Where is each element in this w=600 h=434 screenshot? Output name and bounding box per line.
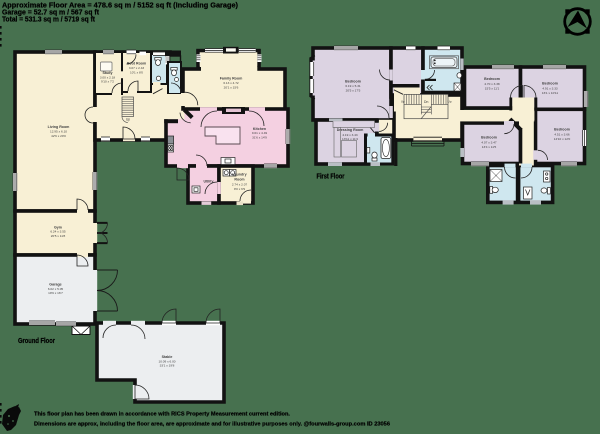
svg-text:20'5 x 11'8: 20'5 x 11'8 [51, 234, 66, 238]
svg-text:9'10 x 7'2: 9'10 x 7'2 [101, 79, 114, 83]
svg-text:4.51 x 3.66: 4.51 x 3.66 [554, 132, 570, 136]
svg-text:Bedroom: Bedroom [542, 82, 558, 86]
svg-text:Bedroom: Bedroom [554, 128, 570, 132]
svg-text:Total = 531.3 sq m / 5719 sq f: Total = 531.3 sq m / 5719 sq ft [2, 17, 96, 24]
svg-text:Dimensions are approx, includi: Dimensions are approx, including the flo… [34, 422, 390, 428]
svg-text:Up: Up [448, 100, 452, 104]
svg-text:20'1 x 15'6: 20'1 x 15'6 [224, 85, 239, 89]
svg-text:16'1 x 10'11: 16'1 x 10'11 [542, 91, 559, 95]
svg-text:Kitchen: Kitchen [253, 127, 266, 131]
svg-text:10'1 x 8'0: 10'1 x 8'0 [130, 70, 143, 74]
svg-text:4.91 x 3.33: 4.91 x 3.33 [542, 86, 558, 90]
svg-text:Dressing Room: Dressing Room [337, 128, 364, 132]
svg-text:4.70 x 3.38: 4.70 x 3.38 [484, 82, 500, 86]
svg-text:13'11 x 11'4: 13'11 x 11'4 [342, 137, 358, 141]
svg-text:Dn: Dn [424, 100, 428, 104]
svg-text:42'6 x 20'0: 42'6 x 20'0 [51, 134, 66, 138]
svg-text:13'4 x 11'5: 13'4 x 11'5 [482, 145, 497, 149]
svg-text:9'0 x 6'9: 9'0 x 6'9 [234, 187, 246, 191]
svg-text:Approximate Floor Area = 478.6: Approximate Floor Area = 478.6 sq m / 51… [2, 3, 238, 10]
svg-text:Garage = 52.7 sq m / 567 sq ft: Garage = 52.7 sq m / 567 sq ft [2, 10, 100, 17]
svg-text:Up: Up [401, 100, 405, 104]
svg-text:Family Room: Family Room [220, 77, 243, 81]
svg-text:Garage: Garage [49, 283, 61, 287]
svg-text:First Floor: First Floor [317, 174, 345, 181]
svg-text:Ground Floor: Ground Floor [18, 338, 55, 345]
svg-text:31'6 x 14'9: 31'6 x 14'9 [252, 136, 267, 140]
svg-text:15'5 x 11'1: 15'5 x 11'1 [485, 86, 500, 90]
svg-text:This floor plan has been drawn: This floor plan has been drawn in accord… [34, 412, 290, 418]
svg-text:Bedroom: Bedroom [484, 77, 500, 81]
svg-text:4.07 x 3.47: 4.07 x 3.47 [481, 140, 497, 144]
svg-text:Utility: Utility [204, 180, 214, 184]
svg-text:Room: Room [234, 178, 244, 182]
svg-text:Bedroom: Bedroom [345, 80, 361, 84]
svg-text:Stable: Stable [162, 355, 173, 359]
svg-text:Laundry: Laundry [232, 172, 246, 176]
svg-text:19'9 x 16'7: 19'9 x 16'7 [48, 291, 63, 295]
svg-text:Bedroom: Bedroom [481, 136, 497, 140]
svg-text:20'5 x 17'5: 20'5 x 17'5 [346, 88, 361, 92]
svg-text:14'10 x 12'0: 14'10 x 12'0 [554, 137, 571, 141]
svg-text:33'1 x 19'8: 33'1 x 19'8 [160, 364, 175, 368]
svg-text:Up: Up [126, 118, 130, 122]
